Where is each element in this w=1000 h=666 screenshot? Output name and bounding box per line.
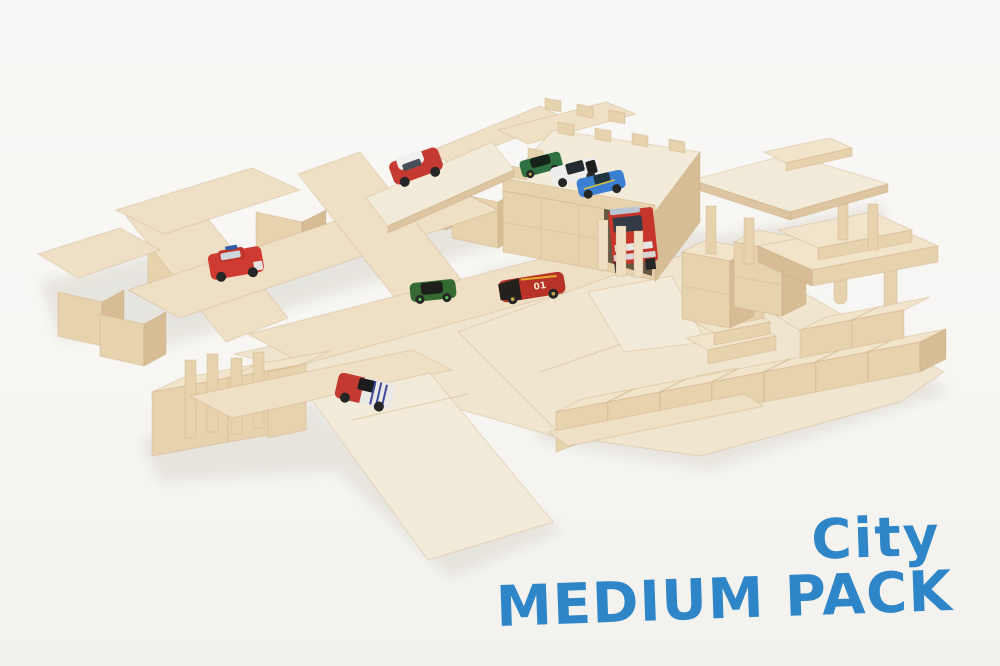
canopy-leg — [744, 218, 754, 264]
product-photo: 01 City MEDIUM PACK — [0, 0, 1000, 666]
barrier-post — [634, 231, 643, 277]
caption-line-pack: MEDIUM PACK — [495, 563, 953, 636]
canopy-leg — [868, 204, 878, 250]
barrier-post — [598, 220, 608, 270]
race-car-number: 01 — [533, 281, 547, 293]
red-truck — [608, 205, 659, 273]
barrier-post — [616, 226, 626, 276]
fence-post — [185, 360, 196, 438]
canopy-leg — [706, 206, 716, 254]
pack-caption: City MEDIUM PACK — [493, 507, 953, 636]
